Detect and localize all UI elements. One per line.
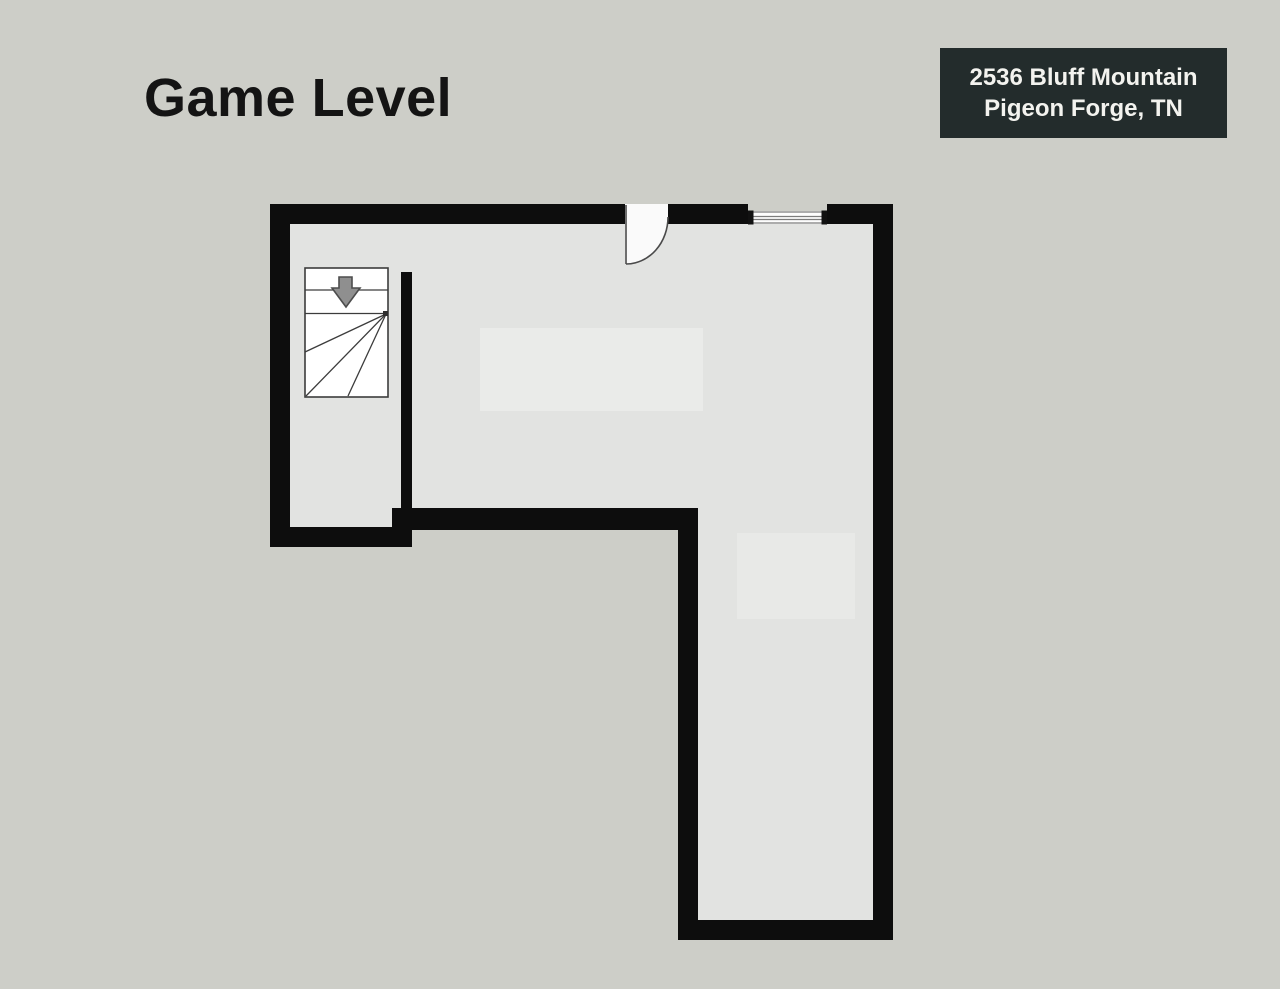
floorplan-svg bbox=[0, 0, 1280, 989]
page-background: Game Level 2536 Bluff Mountain Pigeon Fo… bbox=[0, 0, 1280, 989]
floor-shading-lower bbox=[737, 533, 855, 619]
window-icon bbox=[748, 211, 827, 225]
window-body bbox=[748, 211, 827, 224]
floor-shading-upper bbox=[480, 328, 703, 411]
staircase bbox=[305, 268, 388, 397]
window-jamb-right bbox=[822, 211, 828, 225]
window-jamb-left bbox=[748, 211, 754, 225]
stair-winder-pivot bbox=[383, 311, 388, 316]
